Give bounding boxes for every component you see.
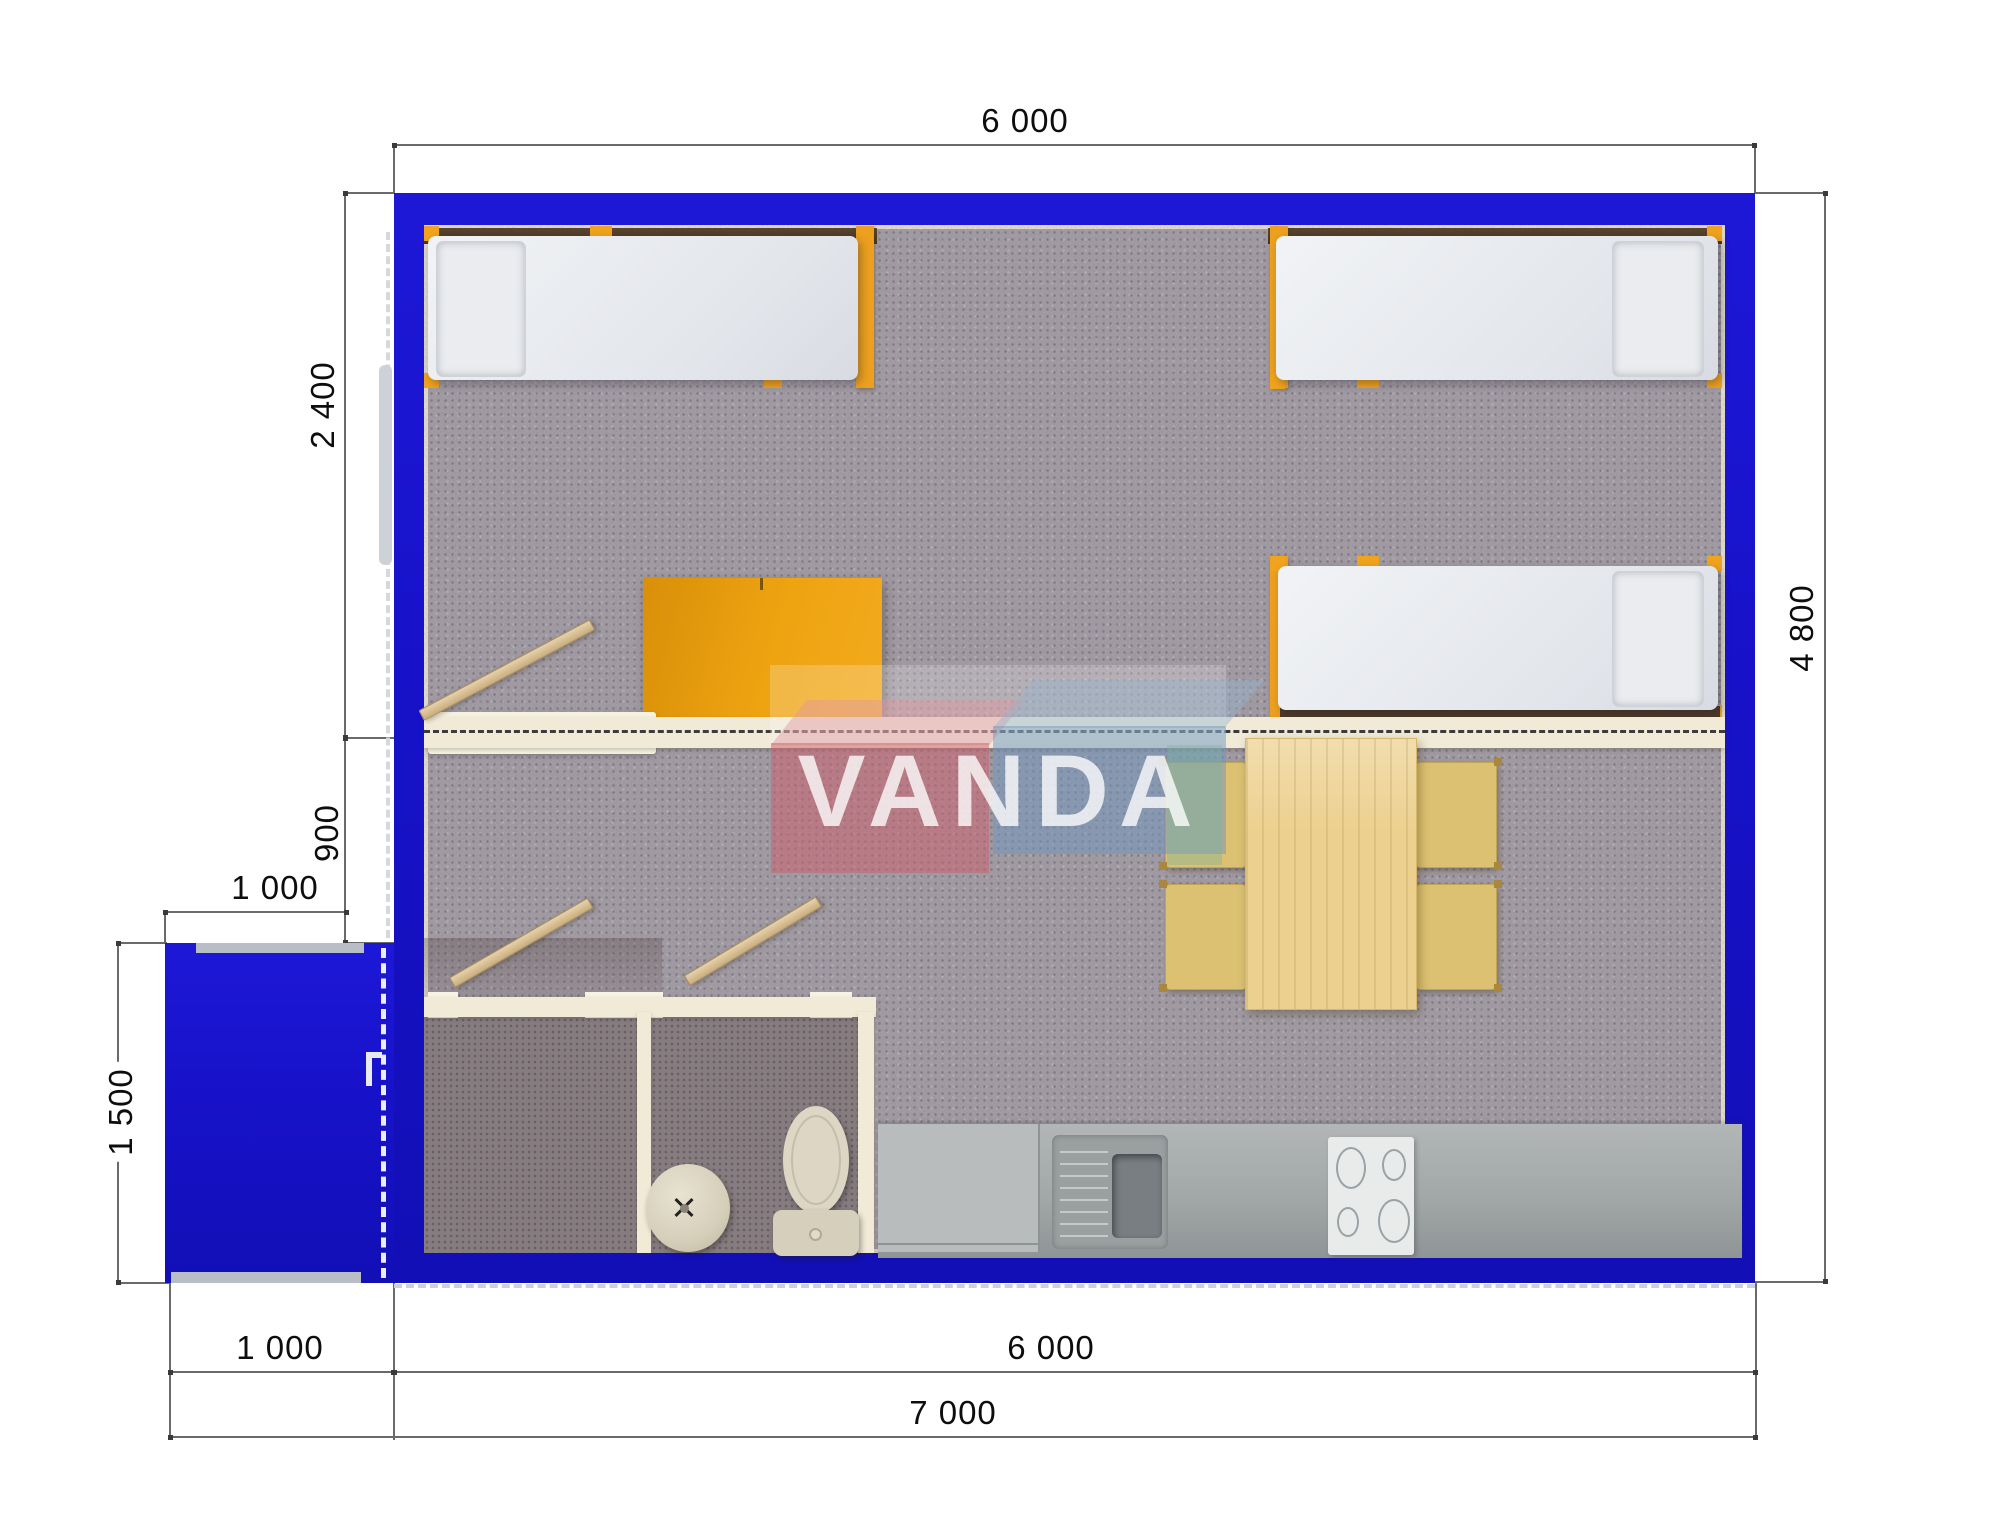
counter-left-seam [878, 1243, 1038, 1245]
dining-chair [1415, 884, 1497, 990]
extension-line [1755, 192, 1828, 194]
foundation-dashed-line [394, 1284, 1755, 1288]
cooktop [1328, 1137, 1414, 1255]
bed-top-left [424, 226, 876, 388]
dim-label-bottom-porch: 1 000 [236, 1329, 324, 1367]
dim-label-porch-depth: 1 500 [102, 1062, 140, 1162]
toilet [773, 1106, 861, 1260]
burner [1336, 1147, 1366, 1189]
chair-leg [1494, 880, 1502, 888]
vanda-watermark: VANDA [755, 615, 1245, 895]
wardrobe-seam [760, 578, 763, 590]
bed-middle-right [1270, 556, 1722, 720]
porch-step-top [196, 943, 364, 953]
dimension-line-left-upper [344, 193, 346, 738]
shower-room-floor [424, 1017, 637, 1253]
chair-leg [1494, 758, 1502, 766]
toilet-flush-button [809, 1228, 822, 1241]
chair-leg [1494, 862, 1502, 870]
extension-line [1755, 1283, 1757, 1440]
extension-line [1754, 145, 1756, 193]
dining-table [1245, 738, 1417, 1010]
pillow [436, 241, 526, 377]
dimension-line-right-depth [1824, 193, 1826, 1282]
porch [165, 943, 394, 1283]
bed-top-right [1270, 226, 1722, 388]
dim-label-bottom-total: 7 000 [909, 1394, 997, 1432]
sink-unit [1052, 1135, 1168, 1249]
extension-line [164, 912, 166, 943]
left-wall-cladding-dashes [386, 232, 390, 938]
floor-plan-canvas: 6 000 2 400 900 1 000 1 500 1 000 6 000 … [0, 0, 2000, 1537]
pillow [1612, 241, 1704, 377]
basin-drain [680, 1204, 689, 1213]
pillow [1612, 571, 1704, 707]
sink-basin [1112, 1154, 1162, 1238]
dim-label-porch-top: 1 000 [231, 869, 319, 907]
dim-label-right-depth: 4 800 [1783, 584, 1821, 672]
burner [1382, 1149, 1406, 1181]
dim-label-bottom-main: 6 000 [1007, 1329, 1095, 1367]
chair-leg [1159, 984, 1167, 992]
extension-line [117, 942, 167, 944]
entry-shadow [424, 938, 662, 998]
left-wall-window-marker [379, 365, 392, 565]
burner [1378, 1199, 1410, 1243]
dimension-line-top-width [394, 144, 1755, 146]
dim-label-left-upper: 2 400 [304, 361, 342, 449]
porch-step-bottom [171, 1272, 361, 1283]
dim-label-top-width: 6 000 [981, 102, 1069, 140]
kitchen-counter [878, 1124, 1742, 1258]
dimension-line-bottom-porch [170, 1371, 394, 1373]
extension-line [344, 192, 394, 194]
wash-basin [646, 1164, 730, 1252]
dimension-line-porch-top [165, 911, 347, 913]
drainboard-ridges [1060, 1151, 1108, 1239]
dim-label-left-hall: 900 [308, 804, 346, 862]
entry-door-dashed-line [381, 948, 386, 1278]
dimension-line-bottom-total [170, 1436, 1756, 1438]
toilet-lid-line [791, 1115, 841, 1205]
extension-line [393, 145, 395, 193]
dining-chair [1415, 762, 1497, 868]
watermark-text: VANDA [755, 735, 1245, 847]
dimension-line-bottom-main [394, 1371, 1756, 1373]
counter-left-module [878, 1124, 1040, 1252]
bed-frame-bar [856, 226, 874, 388]
dining-chair [1165, 884, 1247, 990]
chair-leg [1494, 984, 1502, 992]
entry-door-handle-top [366, 1052, 382, 1058]
extension-line [393, 1283, 395, 1440]
burner [1337, 1207, 1359, 1237]
extension-line [117, 1282, 170, 1284]
watermark-box-top-blue [993, 680, 1265, 728]
extension-line [169, 1283, 171, 1440]
extension-line [1755, 1281, 1828, 1283]
